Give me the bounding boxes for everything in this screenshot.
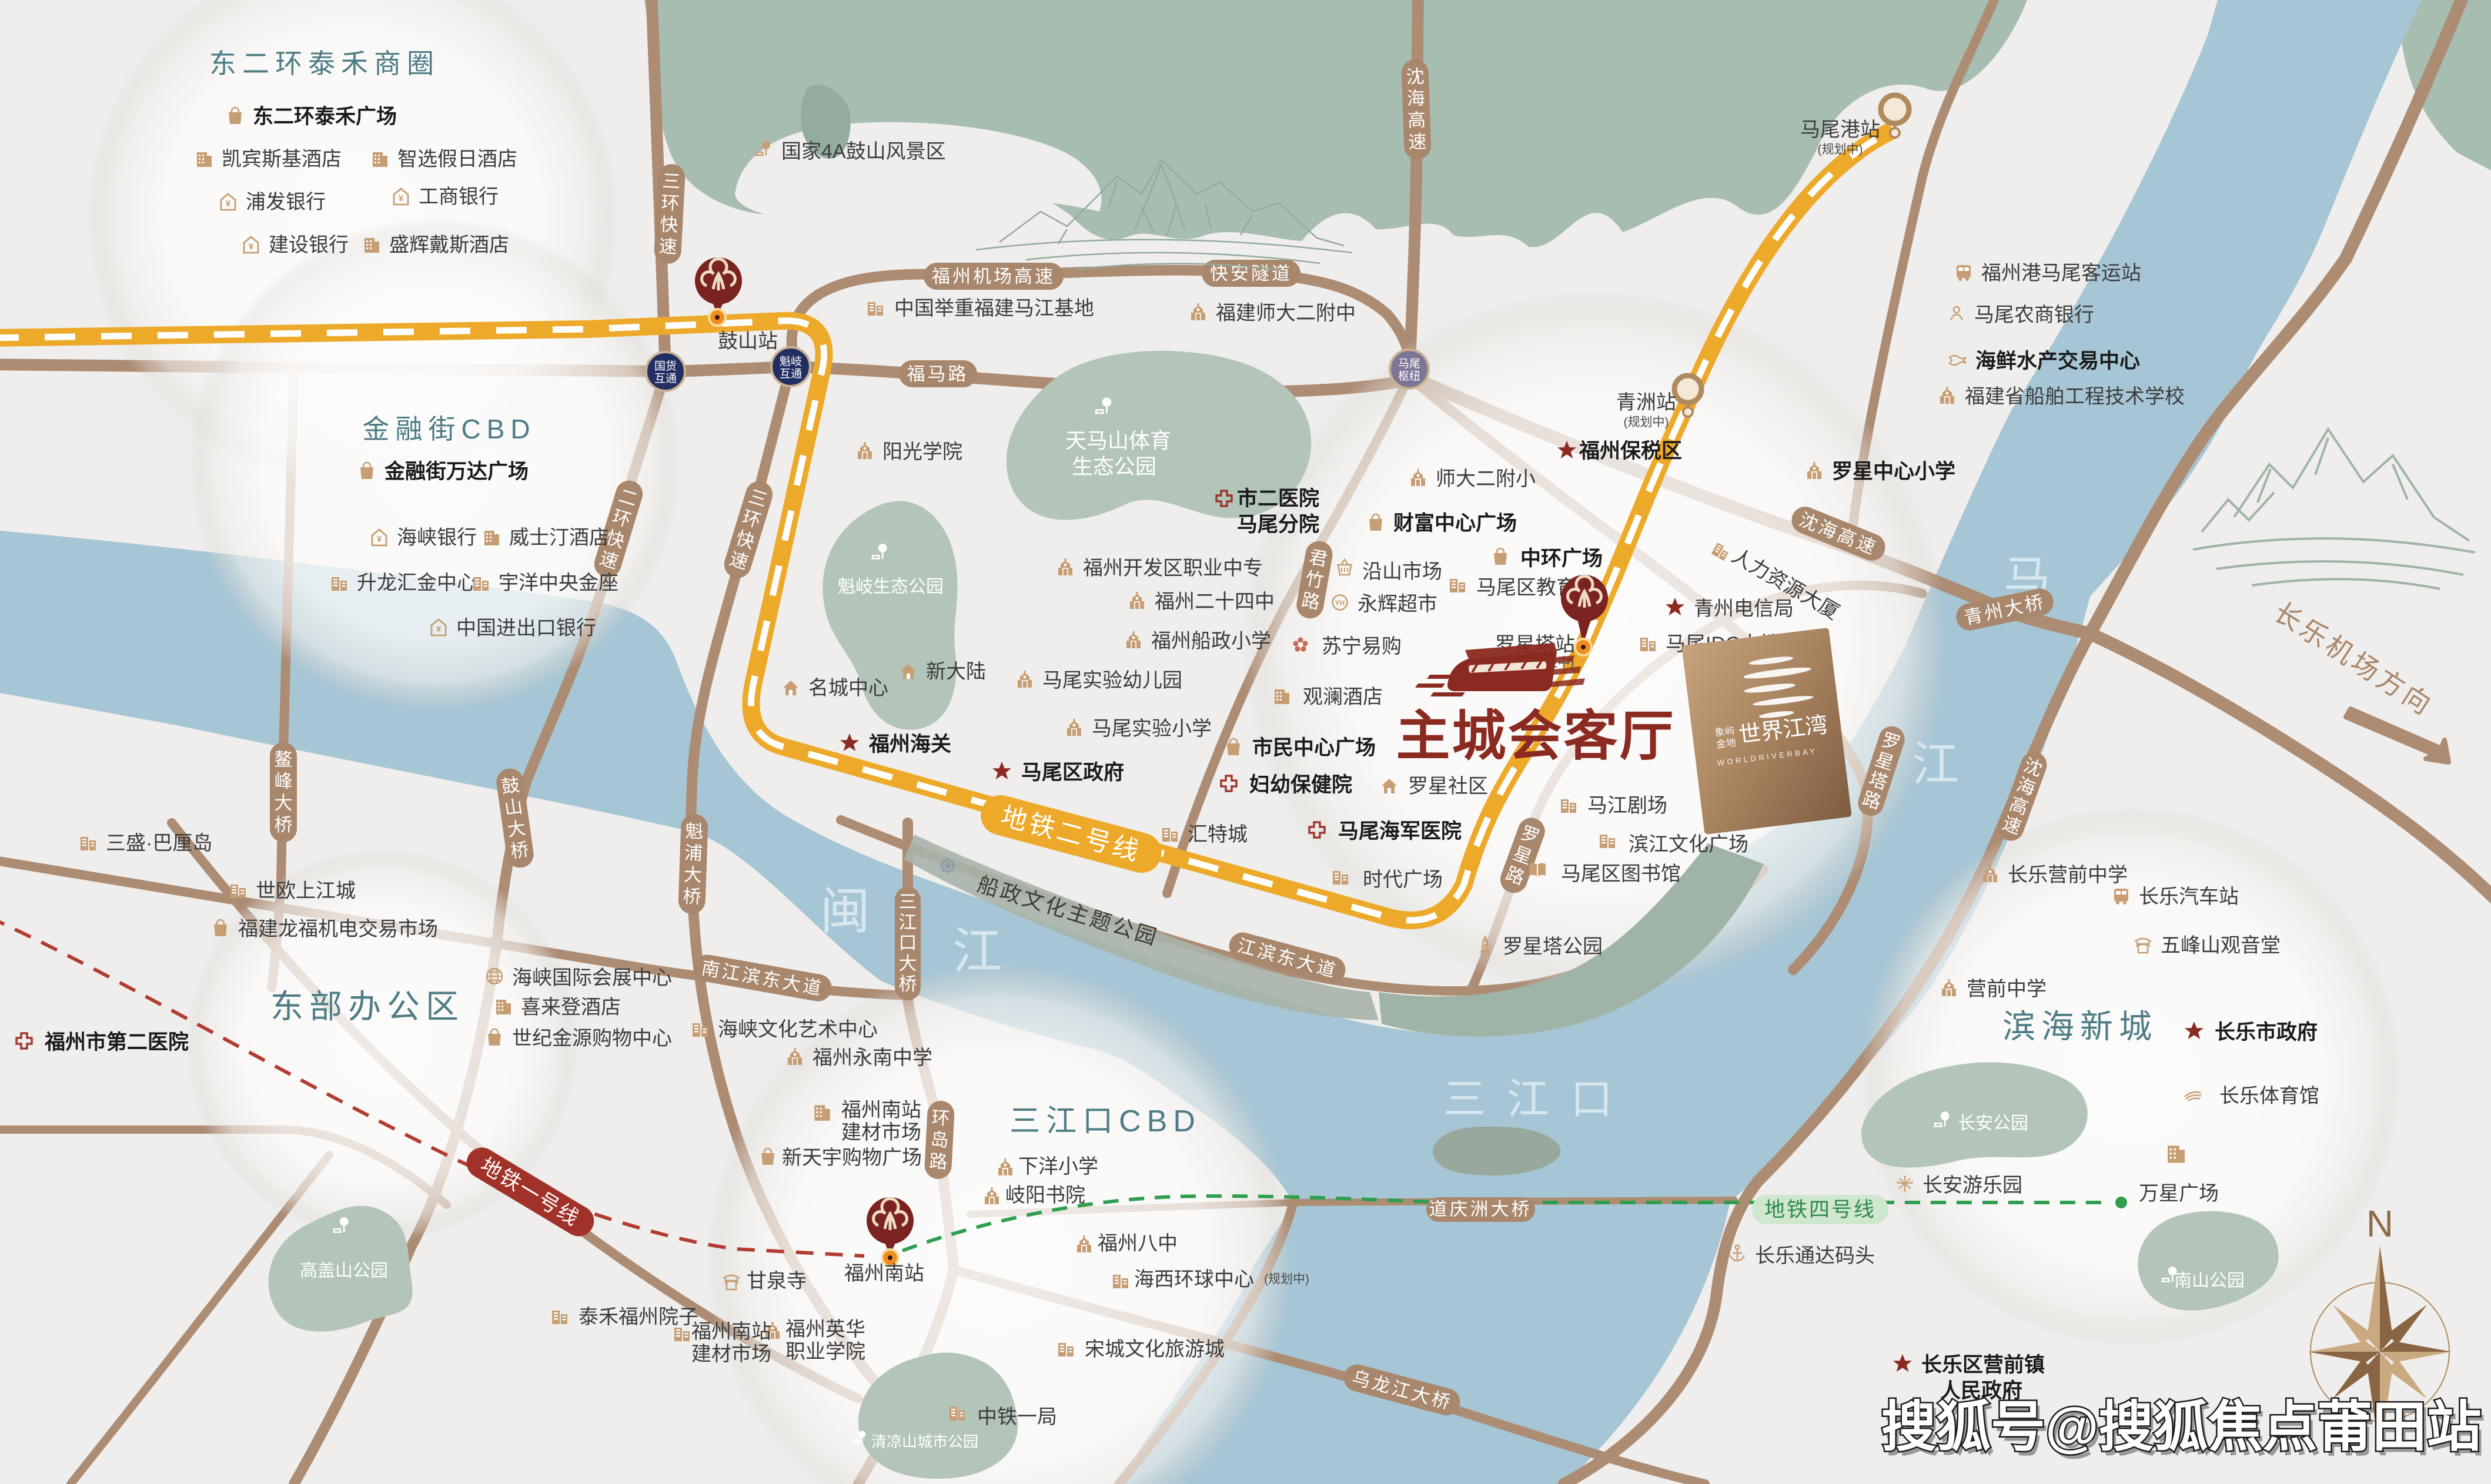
svg-text:长安游乐园: 长安游乐园 xyxy=(1922,1174,2022,1197)
svg-text:市二医院: 市二医院 xyxy=(1237,487,1319,510)
svg-text:长乐区营前镇: 长乐区营前镇 xyxy=(1921,1354,2045,1376)
svg-text:(规划中): (规划中) xyxy=(1818,143,1863,156)
svg-text:魁岐: 魁岐 xyxy=(780,355,802,368)
svg-text:金融街CBD: 金融街CBD xyxy=(362,414,536,444)
svg-text:马尾实验幼儿园: 马尾实验幼儿园 xyxy=(1042,669,1182,692)
svg-text:福州开发区职业中专: 福州开发区职业中专 xyxy=(1083,557,1263,579)
svg-text:桥: 桥 xyxy=(509,839,530,862)
svg-text:大: 大 xyxy=(275,793,293,813)
svg-text:福州市第二医院: 福州市第二医院 xyxy=(44,1031,189,1054)
svg-text:汇特城: 汇特城 xyxy=(1188,823,1248,846)
svg-text:岐阳书院: 岐阳书院 xyxy=(1005,1184,1085,1207)
svg-text:宇洋中央金座: 宇洋中央金座 xyxy=(499,572,618,594)
svg-text:新天宇购物广场: 新天宇购物广场 xyxy=(782,1147,922,1169)
svg-text:大: 大 xyxy=(683,864,702,885)
svg-text:高盖山公园: 高盖山公园 xyxy=(300,1261,388,1281)
svg-text:闽: 闽 xyxy=(820,884,870,940)
svg-text:青洲站: 青洲站 xyxy=(1616,391,1676,414)
svg-text:山: 山 xyxy=(503,796,524,819)
svg-text:浦: 浦 xyxy=(684,842,703,863)
svg-text:马尾区图书馆: 马尾区图书馆 xyxy=(1561,863,1681,885)
svg-text:环: 环 xyxy=(931,1107,951,1129)
svg-text:速: 速 xyxy=(658,236,678,257)
svg-text:江: 江 xyxy=(899,912,917,933)
svg-text:三: 三 xyxy=(662,170,681,192)
svg-text:桥: 桥 xyxy=(275,815,293,835)
svg-text:魁: 魁 xyxy=(685,821,704,842)
svg-text:福州二十四中: 福州二十四中 xyxy=(1155,591,1275,613)
svg-text:沿山市场: 沿山市场 xyxy=(1362,561,1442,583)
svg-text:中国举重福建马江基地: 中国举重福建马江基地 xyxy=(894,297,1094,320)
svg-text:三: 三 xyxy=(899,892,917,912)
svg-text:中铁一局: 中铁一局 xyxy=(977,1406,1057,1428)
svg-text:观澜酒店: 观澜酒店 xyxy=(1303,686,1383,708)
svg-text:阳光学院: 阳光学院 xyxy=(882,441,962,463)
svg-text:甘泉寺: 甘泉寺 xyxy=(747,1270,807,1292)
svg-text:东部办公区: 东部办公区 xyxy=(270,988,464,1025)
svg-text:道庆洲大桥: 道庆洲大桥 xyxy=(1429,1199,1532,1220)
svg-text:中国进出口银行: 中国进出口银行 xyxy=(456,617,596,639)
svg-text:福州机场高速: 福州机场高速 xyxy=(932,266,1055,287)
svg-text:师大二附小: 师大二附小 xyxy=(1436,468,1536,490)
svg-text:滨海新城: 滨海新城 xyxy=(2002,1008,2158,1045)
svg-text:长乐通达码头: 长乐通达码头 xyxy=(1755,1245,1875,1267)
svg-text:宋城文化旅游城: 宋城文化旅游城 xyxy=(1085,1338,1225,1361)
svg-text:海西环球中心: 海西环球中心 xyxy=(1134,1268,1254,1291)
svg-text:路: 路 xyxy=(929,1151,948,1173)
svg-text:滨江文化广场: 滨江文化广场 xyxy=(1629,833,1748,856)
svg-text:建设银行: 建设银行 xyxy=(269,234,349,256)
svg-text:长安公园: 长安公园 xyxy=(1958,1114,2028,1133)
svg-text:长乐汽车站: 长乐汽车站 xyxy=(2139,886,2239,908)
svg-text:福州英华: 福州英华 xyxy=(785,1318,865,1341)
svg-text:浦发银行: 浦发银行 xyxy=(246,191,326,213)
svg-text:福州南站: 福州南站 xyxy=(844,1262,924,1285)
svg-text:马尾农商银行: 马尾农商银行 xyxy=(1974,304,2094,326)
svg-text:福州南站: 福州南站 xyxy=(691,1321,771,1343)
svg-text:桥: 桥 xyxy=(899,974,917,994)
svg-text:速: 速 xyxy=(1408,131,1427,152)
svg-text:福建龙福机电交易市场: 福建龙福机电交易市场 xyxy=(238,918,438,940)
svg-text:升龙汇金中心: 升龙汇金中心 xyxy=(357,572,477,594)
svg-text:海峡银行: 海峡银行 xyxy=(397,527,477,549)
svg-text:马尾实验小学: 马尾实验小学 xyxy=(1092,718,1212,740)
svg-text:罗星塔公园: 罗星塔公园 xyxy=(1503,936,1603,958)
svg-text:时代广场: 时代广场 xyxy=(1363,869,1443,891)
svg-text:国家4A鼓山风景区: 国家4A鼓山风景区 xyxy=(781,140,946,163)
svg-text:罗星社区: 罗星社区 xyxy=(1408,775,1488,798)
svg-text:青州电信局: 青州电信局 xyxy=(1694,598,1794,620)
svg-text:金融街万达广场: 金融街万达广场 xyxy=(384,460,529,483)
svg-text:三江口CBD: 三江口CBD xyxy=(1009,1104,1201,1138)
svg-text:建材市场: 建材市场 xyxy=(691,1343,771,1365)
svg-text:罗星中心小学: 罗星中心小学 xyxy=(1832,460,1955,483)
svg-text:马尾分院: 马尾分院 xyxy=(1237,513,1319,536)
svg-text:大: 大 xyxy=(899,953,917,974)
svg-text:三盛·巴厘岛: 三盛·巴厘岛 xyxy=(106,832,212,855)
svg-text:大: 大 xyxy=(506,818,527,840)
svg-text:互通: 互通 xyxy=(780,367,802,380)
svg-text:口: 口 xyxy=(899,933,917,953)
svg-text:环: 环 xyxy=(661,192,680,214)
svg-text:喜来登酒店: 喜来登酒店 xyxy=(521,996,621,1019)
svg-text:妇幼保健院: 妇幼保健院 xyxy=(1249,773,1352,796)
svg-text:下洋小学: 下洋小学 xyxy=(1018,1155,1098,1178)
svg-text:沈: 沈 xyxy=(1406,66,1425,88)
svg-text:海峡国际会展中心: 海峡国际会展中心 xyxy=(512,967,672,989)
svg-text:互通: 互通 xyxy=(654,372,677,385)
svg-text:清凉山城市公园: 清凉山城市公园 xyxy=(871,1433,978,1450)
svg-text:三江口: 三江口 xyxy=(1443,1076,1634,1123)
svg-text:中环广场: 中环广场 xyxy=(1520,547,1603,570)
svg-text:福马路: 福马路 xyxy=(907,364,969,384)
svg-text:工商银行: 工商银行 xyxy=(419,186,499,208)
svg-text:马尾海军医院: 马尾海军医院 xyxy=(1338,820,1462,843)
svg-text:马江剧场: 马江剧场 xyxy=(1587,795,1667,817)
svg-text:东二环泰禾广场: 东二环泰禾广场 xyxy=(253,105,397,128)
svg-text:主城会客厅: 主城会客厅 xyxy=(1396,706,1675,766)
svg-text:鼓山站: 鼓山站 xyxy=(718,330,778,353)
svg-text:福建省船舶工程技术学校: 福建省船舶工程技术学校 xyxy=(1965,386,2185,408)
svg-text:海峡文化艺术中心: 海峡文化艺术中心 xyxy=(718,1019,878,1041)
svg-text:路: 路 xyxy=(1300,589,1322,613)
svg-text:峰: 峰 xyxy=(275,771,293,792)
svg-text:鳌: 鳌 xyxy=(275,749,293,770)
svg-text:福州八中: 福州八中 xyxy=(1098,1232,1178,1255)
svg-text:智选假日酒店: 智选假日酒店 xyxy=(397,148,517,170)
svg-text:凯宾斯基酒店: 凯宾斯基酒店 xyxy=(222,148,342,170)
svg-text:世欧上江城: 世欧上江城 xyxy=(256,880,356,902)
svg-text:财富中心广场: 财富中心广场 xyxy=(1393,511,1517,535)
svg-text:福州南站: 福州南站 xyxy=(841,1099,921,1121)
svg-text:桥: 桥 xyxy=(683,886,701,907)
svg-text:马尾: 马尾 xyxy=(1398,358,1420,370)
svg-text:国货: 国货 xyxy=(654,360,677,373)
svg-text:福建师大二附中: 福建师大二附中 xyxy=(1216,302,1356,324)
svg-text:泰禾福州院子: 泰禾福州院子 xyxy=(579,1306,698,1328)
svg-text:世纪金源购物中心: 世纪金源购物中心 xyxy=(512,1027,672,1050)
svg-text:(规划中): (规划中) xyxy=(1624,416,1669,429)
svg-text:苏宁易购: 苏宁易购 xyxy=(1322,635,1402,658)
svg-text:天马山体育: 天马山体育 xyxy=(1065,428,1171,453)
svg-text:岛: 岛 xyxy=(930,1129,949,1151)
svg-text:马尾区政府: 马尾区政府 xyxy=(1021,761,1124,784)
svg-text:永辉超市: 永辉超市 xyxy=(1357,593,1437,615)
svg-text:职业学院: 职业学院 xyxy=(785,1341,865,1363)
svg-text:鼓: 鼓 xyxy=(500,775,521,798)
svg-text:盛辉戴斯酒店: 盛辉戴斯酒店 xyxy=(389,234,509,256)
svg-text:快: 快 xyxy=(660,214,679,236)
svg-text:长乐体育馆: 长乐体育馆 xyxy=(2219,1085,2319,1107)
svg-text:名城中心: 名城中心 xyxy=(808,677,888,699)
svg-text:长乐营前中学: 长乐营前中学 xyxy=(2008,864,2128,886)
svg-text:福州保税区: 福州保税区 xyxy=(1579,440,1682,463)
svg-text:N: N xyxy=(2366,1202,2393,1245)
svg-text:福州港马尾客运站: 福州港马尾客运站 xyxy=(1981,262,2141,284)
svg-text:枢纽: 枢纽 xyxy=(1398,370,1420,383)
svg-text:海鲜水产交易中心: 海鲜水产交易中心 xyxy=(1975,349,2140,373)
svg-text:搜狐号@搜狐焦点莆田站: 搜狐号@搜狐焦点莆田站 xyxy=(1881,1396,2482,1458)
svg-text:长乐市政府: 长乐市政府 xyxy=(2215,1020,2318,1044)
svg-text:福州永南中学: 福州永南中学 xyxy=(812,1047,932,1069)
svg-text:魁岐生态公园: 魁岐生态公园 xyxy=(838,577,944,597)
svg-text:生态公园: 生态公园 xyxy=(1072,454,1156,478)
svg-text:新大陆: 新大陆 xyxy=(926,661,986,683)
svg-text:高: 高 xyxy=(1407,109,1426,130)
svg-text:(规划中): (规划中) xyxy=(1264,1272,1309,1286)
svg-text:营前中学: 营前中学 xyxy=(1967,978,2047,1000)
svg-text:万星广场: 万星广场 xyxy=(2139,1182,2219,1205)
svg-text:市民中心广场: 市民中心广场 xyxy=(1252,736,1376,759)
svg-text:海: 海 xyxy=(1406,88,1425,109)
svg-text:竹: 竹 xyxy=(1304,568,1326,592)
svg-text:建材市场: 建材市场 xyxy=(841,1121,921,1144)
svg-text:君: 君 xyxy=(1308,547,1329,570)
svg-text:南山公园: 南山公园 xyxy=(2174,1271,2245,1291)
svg-text:福州海关: 福州海关 xyxy=(868,733,951,756)
svg-text:五峰山观音堂: 五峰山观音堂 xyxy=(2161,934,2281,957)
svg-text:威士汀酒店: 威士汀酒店 xyxy=(509,527,609,549)
svg-text:马尾港站: 马尾港站 xyxy=(1800,119,1880,141)
svg-text:地铁四号线: 地铁四号线 xyxy=(1764,1198,1876,1221)
svg-text:东二环泰禾商圈: 东二环泰禾商圈 xyxy=(209,48,440,79)
svg-text:福州船政小学: 福州船政小学 xyxy=(1151,630,1271,652)
